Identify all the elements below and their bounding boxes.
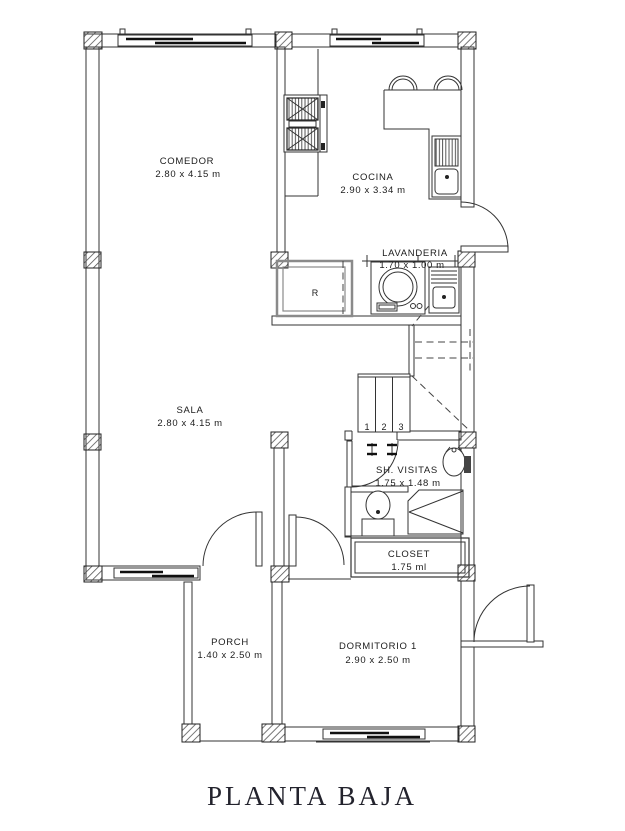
label-closet: CLOSET: [388, 549, 430, 560]
dims-comedor: 2.80 x 4.15 m: [155, 169, 220, 180]
stair-step-2: 2: [381, 422, 386, 432]
dims-closet: 1.75 ml: [391, 562, 426, 573]
floor-plan-drawing: 1 2 3: [0, 0, 625, 831]
label-refrigerator: R: [312, 288, 319, 298]
dims-dormitorio1: 2.90 x 2.50 m: [345, 655, 410, 666]
dims-cocina: 2.90 x 3.34 m: [340, 185, 405, 196]
stove: [284, 95, 327, 152]
dims-lavanderia: 1.70 x 1.00 m: [379, 260, 444, 271]
window-cocina: [330, 29, 424, 46]
label-sala: SALA: [176, 405, 203, 416]
stair-step-1: 1: [364, 422, 369, 432]
floor-plan-page: 1 2 3: [0, 0, 625, 831]
dims-sala: 2.80 x 4.15 m: [157, 418, 222, 429]
kitchen-sink: [432, 136, 461, 197]
toilet: [362, 491, 394, 536]
kitchen-exterior-door: [461, 202, 508, 252]
laundry-sink: [429, 267, 459, 313]
label-cocina: COCINA: [352, 172, 393, 183]
label-lavanderia: LAVANDERIA: [382, 248, 448, 259]
door-jamb-marks: [367, 443, 397, 456]
label-sh-visitas: SH. VISITAS: [376, 465, 438, 476]
window-sala: [114, 568, 198, 578]
window-comedor: [118, 29, 252, 46]
dims-sh-visitas: 1.75 x 1.48 m: [375, 478, 440, 489]
label-porch: PORCH: [211, 637, 249, 648]
entry-door: [203, 512, 262, 566]
dormitorio-door: [289, 515, 344, 566]
dims-porch: 1.40 x 2.50 m: [197, 650, 262, 661]
stair-step-3: 3: [398, 422, 403, 432]
label-dormitorio1: DORMITORIO 1: [339, 641, 417, 652]
label-comedor: COMEDOR: [160, 156, 215, 167]
shower: [408, 490, 463, 534]
page-title: PLANTA BAJA: [207, 781, 417, 811]
